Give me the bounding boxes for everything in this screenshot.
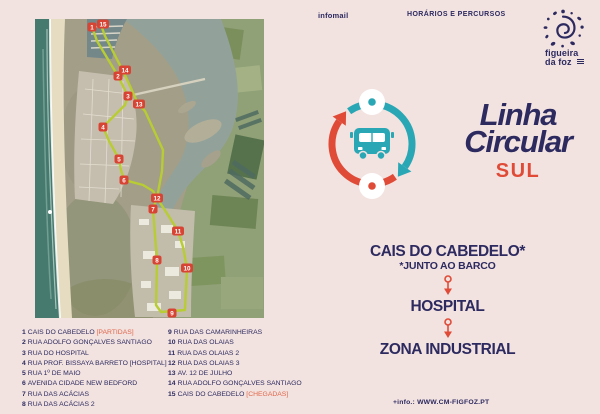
svg-text:14: 14 [121,67,129,74]
stop-marker-11: 11 [172,227,184,236]
municipality-smallprint [577,59,584,65]
summary-stop-1: CAIS DO CABEDELO* [340,244,555,260]
list-item: 13AV. 12 DE JULHO [168,369,302,379]
linha-circular-logo [314,86,430,202]
stop-marker-4: 4 [99,123,108,132]
list-item: 2RUA ADOLFO GONÇALVES SANTIAGO [22,338,167,348]
stop-marker-7: 7 [149,205,158,214]
list-item: 12RUA DAS OLAIAS 3 [168,359,302,369]
stop-marker-1: 1 [88,23,97,32]
horarios-percursos-label[interactable]: HORÁRIOS E PERCURSOS [407,11,506,18]
svg-text:7: 7 [151,206,155,213]
down-arrow-icon [440,318,456,339]
stop-marker-13: 13 [133,100,145,109]
svg-text:3: 3 [126,93,130,100]
summary-stop-1-note: *JUNTO AO BARCO [340,261,555,272]
svg-text:11: 11 [175,228,182,235]
svg-text:9: 9 [170,310,174,317]
svg-text:2: 2 [116,73,120,80]
municipality-name: figueira da foz [538,49,590,66]
route-summary: CAIS DO CABEDELO* *JUNTO AO BARCO HOSPIT… [340,244,555,358]
figueira-da-foz-logo: figueira da foz [538,9,590,66]
stop-marker-5: 5 [115,155,124,164]
svg-text:13: 13 [135,101,143,108]
svg-text:4: 4 [101,124,105,131]
list-item: 1CAIS DO CABEDELO [PARTIDAS] [22,328,167,338]
svg-text:10: 10 [183,265,191,272]
title-circular: Circular [436,128,600,155]
buoy-dot [48,210,52,214]
list-item: 5RUA 1º DE MAIO [22,369,167,379]
stop-marker-12: 12 [151,194,163,203]
page-title: Linha Circular SUL [436,101,600,182]
website-link[interactable]: +info.: WWW.CM-FIGFOZ.PT [393,399,489,406]
list-item: 15CAIS DO CABEDELO [CHEGADAS] [168,390,302,400]
list-item: 10RUA DAS OLAIAS [168,338,302,348]
route-map-svg: 115214313456789101112 [35,19,264,318]
title-sul: SUL [436,160,600,182]
list-item: 6AVENIDA CIDADE NEW BEDFORD [22,379,167,389]
stop-marker-15: 15 [97,20,109,29]
stop-marker-6: 6 [120,176,129,185]
infomail-logo: infomail [318,11,348,20]
svg-text:12: 12 [153,195,161,202]
stop-marker-8: 8 [153,256,162,265]
stop-marker-10: 10 [181,264,193,273]
list-item: 11RUA DAS OLAIAS 2 [168,349,302,359]
svg-text:6: 6 [122,177,126,184]
stop-marker-14: 14 [119,66,131,75]
sun-spiral-icon [543,9,585,49]
svg-text:5: 5 [117,156,121,163]
route-map[interactable]: 115214313456789101112 [35,19,264,318]
svg-text:1: 1 [90,24,94,31]
bus-icon [350,128,394,160]
down-arrow-icon [440,275,456,296]
stop-marker-3: 3 [124,92,133,101]
list-item: 3RUA DO HOSPITAL [22,349,167,359]
list-item: 7RUA DAS ACÁCIAS [22,390,167,400]
list-item: 9RUA DAS CAMARINHEIRAS [168,328,302,338]
summary-stop-2: HOSPITAL [340,299,555,315]
summary-stop-3: ZONA INDUSTRIAL [340,342,555,358]
map-terrain [35,19,264,318]
list-item: 14RUA ADOLFO GONÇALVES SANTIAGO [168,379,302,389]
svg-text:8: 8 [155,257,159,264]
svg-text:15: 15 [99,21,107,28]
list-item: 8RUA DAS ACÁCIAS 2 [22,400,167,410]
stops-col2: 9RUA DAS CAMARINHEIRAS10RUA DAS OLAIAS11… [168,328,302,400]
stop-marker-9: 9 [168,309,177,318]
list-item: 4RUA PROF. BISSAYA BARRETO [HOSPITAL] [22,359,167,369]
stops-col1: 1CAIS DO CABEDELO [PARTIDAS]2RUA ADOLFO … [22,328,167,410]
